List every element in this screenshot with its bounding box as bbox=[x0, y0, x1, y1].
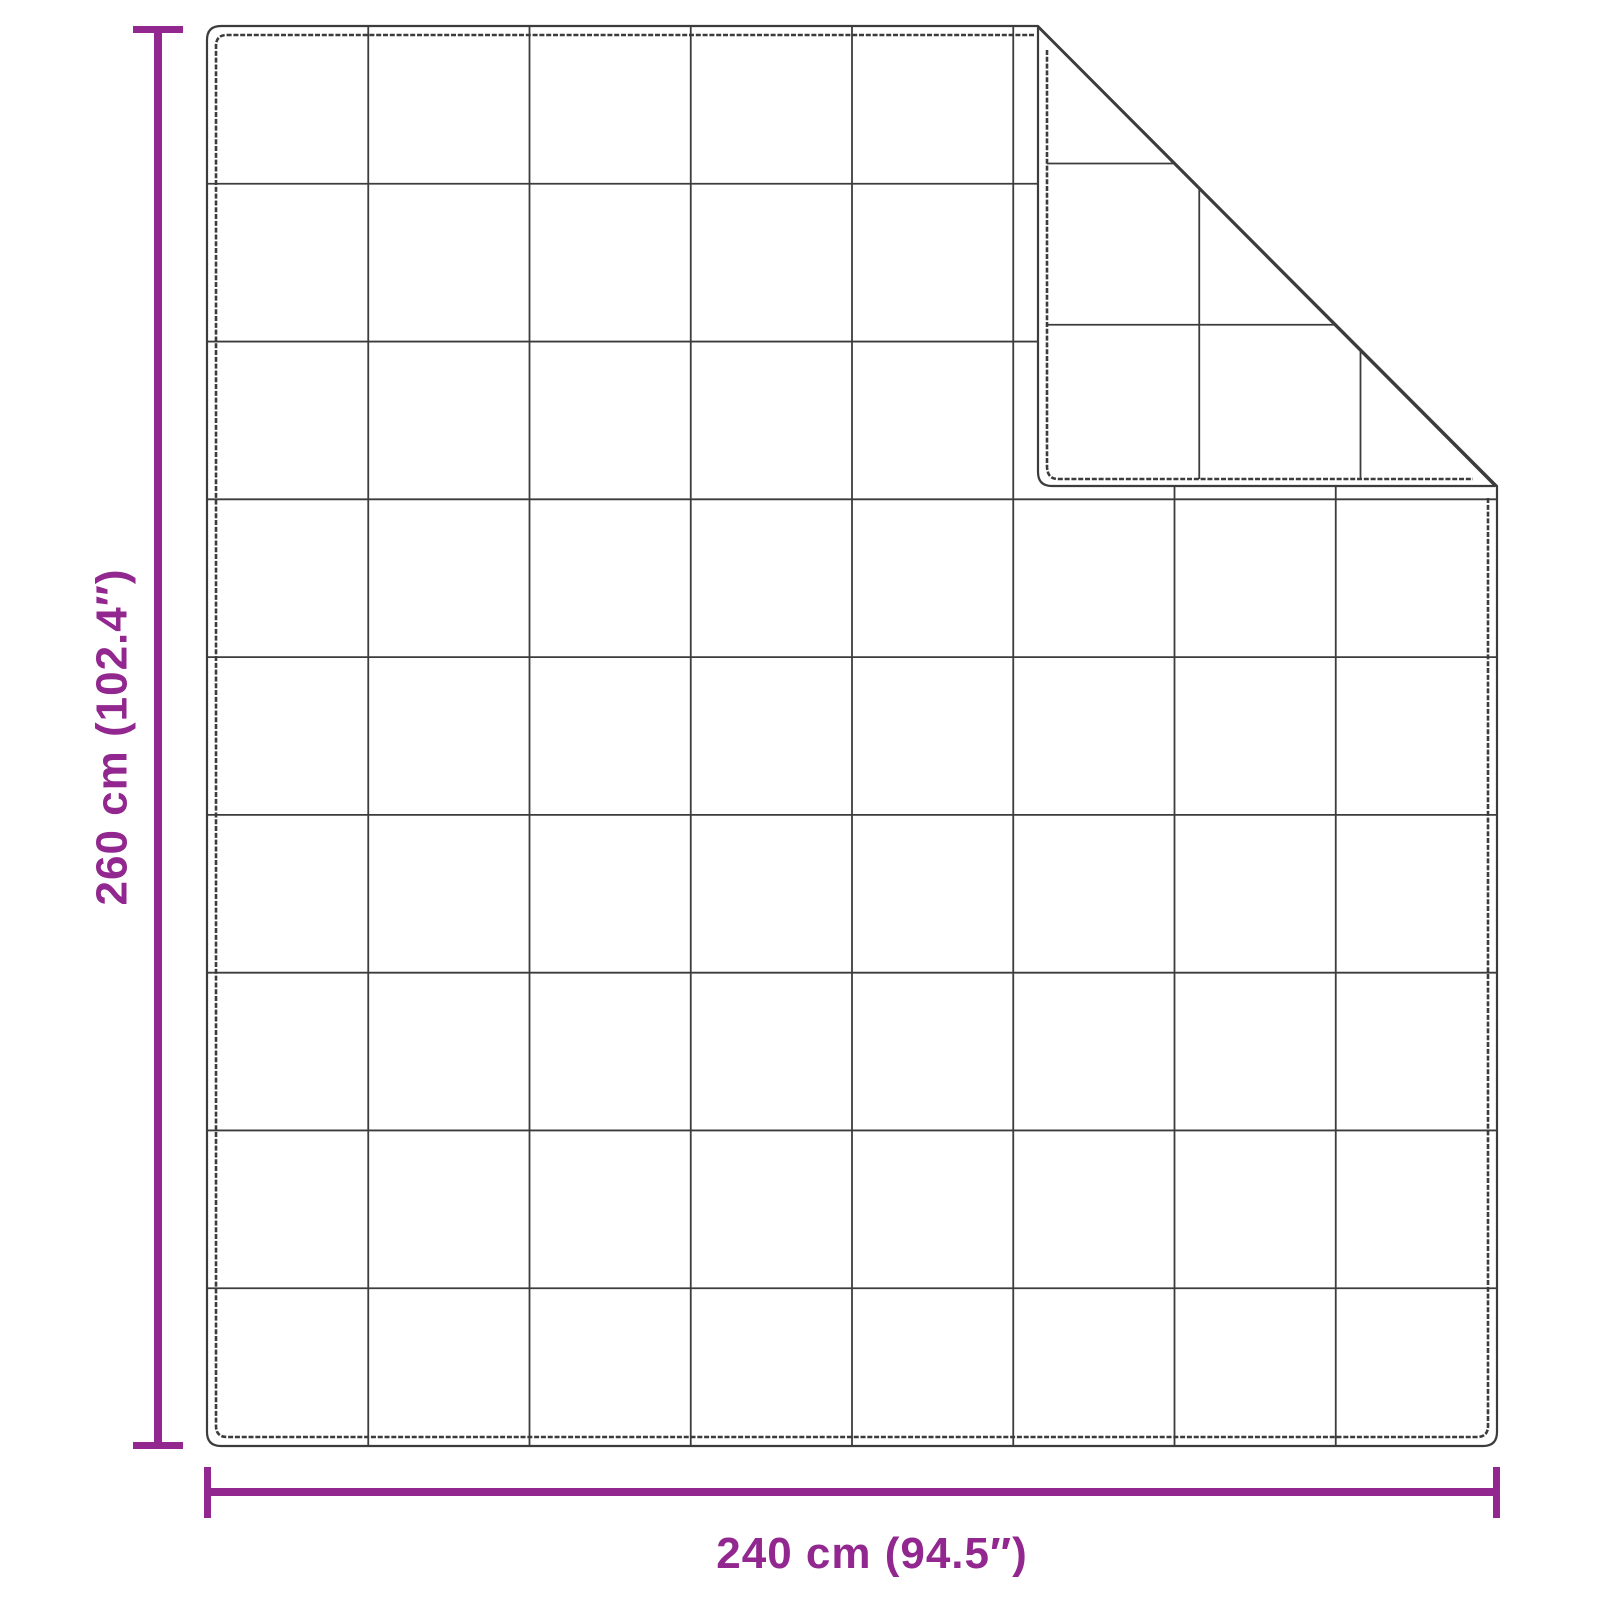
height-dimension-cap-top bbox=[133, 26, 183, 33]
width-dimension-cap-right bbox=[1493, 1467, 1500, 1518]
height-dimension-line bbox=[154, 28, 162, 1446]
blanket-dimension-diagram: 260 cm (102.4″) 240 cm (94.5″) bbox=[0, 0, 1600, 1600]
height-dimension-cap-bottom bbox=[133, 1442, 183, 1449]
folded-corner-edge bbox=[1038, 27, 1495, 486]
width-dimension-line bbox=[207, 1488, 1497, 1496]
blanket-dimension-diagram-page: 260 cm (102.4″) 240 cm (94.5″) bbox=[0, 0, 1600, 1600]
width-dimension-label: 240 cm (94.5″) bbox=[716, 1529, 1027, 1578]
height-dimension-label: 260 cm (102.4″) bbox=[88, 569, 137, 906]
folded-corner-flap bbox=[1038, 27, 1495, 486]
width-dimension-cap-left bbox=[204, 1467, 211, 1518]
